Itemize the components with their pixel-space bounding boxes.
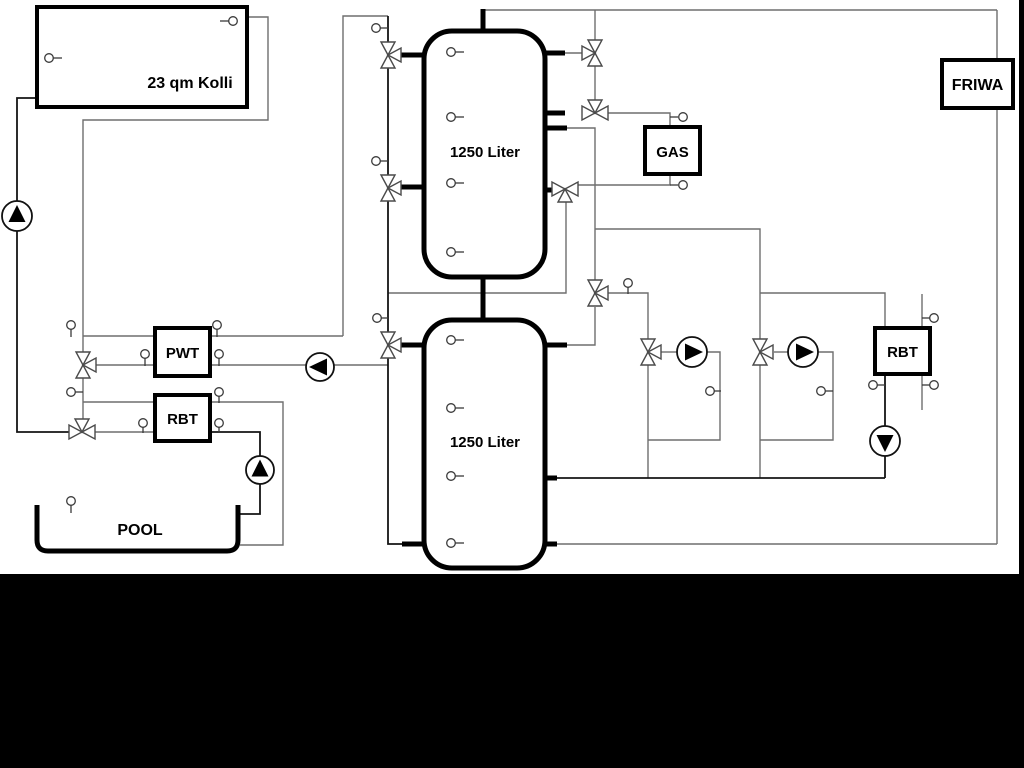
rbt-right-label: RBT — [887, 344, 918, 361]
letterbox-right — [1019, 0, 1024, 768]
tank-bottom-label: 1250 Liter — [450, 434, 520, 451]
heating-pump-2-icon — [788, 337, 818, 367]
pool-label: POOL — [117, 522, 163, 539]
rbt-left-label: RBT — [167, 411, 198, 428]
rbt-right-pump-icon — [870, 426, 900, 456]
solar-collector-box — [37, 7, 247, 107]
gas-label: GAS — [656, 144, 689, 161]
pwt-label: PWT — [166, 345, 199, 362]
letterbox-bottom — [0, 574, 1024, 768]
pool-pump-icon — [246, 456, 274, 484]
solar-pump-icon — [2, 201, 32, 231]
heating-pump-1-icon — [677, 337, 707, 367]
tank-top-label: 1250 Liter — [450, 144, 520, 161]
collector-label: 23 qm Kolli — [147, 75, 232, 92]
hydraulic-schematic-screenshot: 23 qm Kolli 1250 Liter 1250 Liter PWT RB… — [0, 0, 1024, 768]
pwt-pump-icon — [306, 353, 334, 381]
schematic-canvas: 23 qm Kolli 1250 Liter 1250 Liter PWT RB… — [0, 0, 1024, 768]
friwa-label: FRIWA — [952, 77, 1004, 94]
